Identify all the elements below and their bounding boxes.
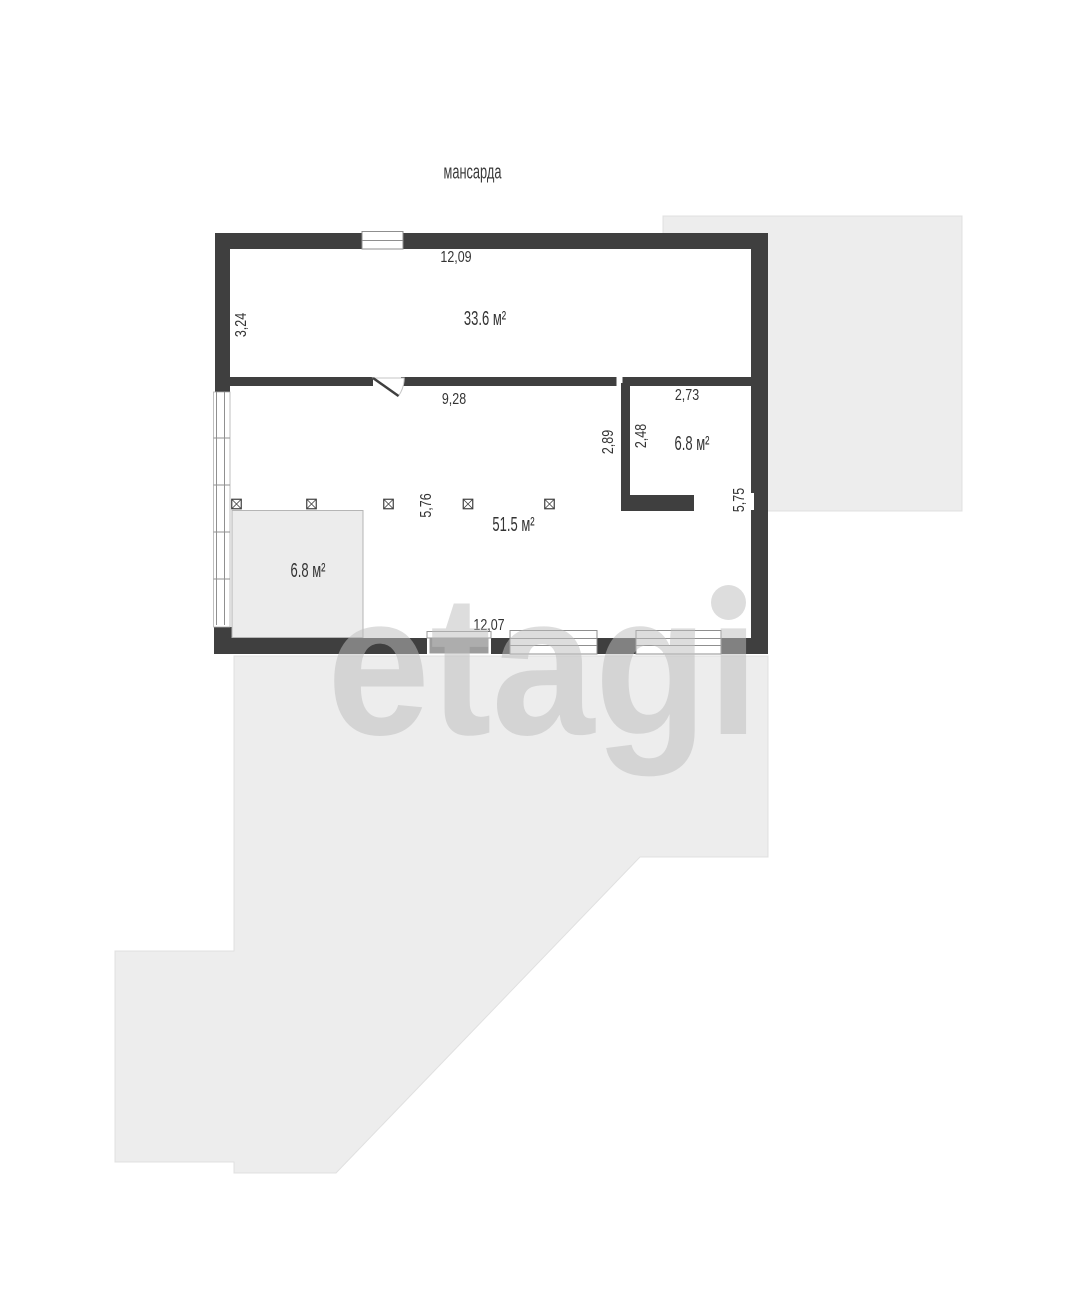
svg-text:6.8 м²: 6.8 м² — [291, 559, 326, 582]
svg-text:12,09: 12,09 — [440, 249, 471, 267]
svg-text:2,48: 2,48 — [632, 424, 650, 448]
svg-text:2,89: 2,89 — [599, 430, 617, 454]
svg-text:5,76: 5,76 — [417, 493, 435, 517]
svg-text:9,28: 9,28 — [442, 391, 466, 409]
svg-text:мансарда: мансарда — [444, 161, 502, 184]
svg-text:3,24: 3,24 — [232, 313, 250, 337]
svg-text:5,75: 5,75 — [730, 488, 748, 512]
svg-text:51.5 м²: 51.5 м² — [492, 513, 534, 536]
svg-text:2,73: 2,73 — [675, 387, 699, 405]
svg-text:33.6 м²: 33.6 м² — [464, 307, 506, 330]
svg-text:etagı: etagı — [327, 554, 759, 777]
svg-text:6.8 м²: 6.8 м² — [675, 432, 710, 455]
